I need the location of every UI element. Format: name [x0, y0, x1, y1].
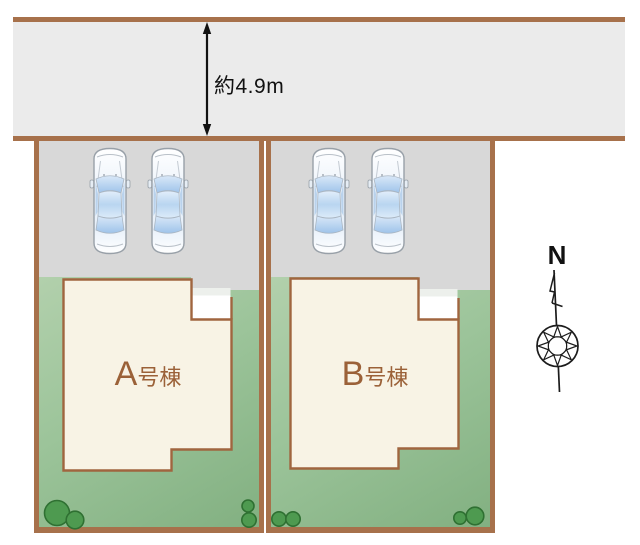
building-a-porch: [193, 296, 231, 319]
bushes: [45, 500, 484, 529]
bush-icon: [66, 511, 84, 529]
car-icon: [368, 149, 408, 254]
site-plan: 約4.9m A号棟 B号棟 N: [0, 0, 640, 545]
building-a-label: A号棟: [63, 357, 233, 392]
road-width-label: 約4.9m: [214, 70, 284, 100]
car-icon: [148, 149, 188, 254]
building-b-label-letter: B: [342, 355, 365, 393]
car-icon: [309, 149, 349, 254]
plan-drawing: [0, 0, 640, 545]
building-b-entrance-step: [420, 289, 458, 297]
bush-icon: [286, 512, 300, 526]
building-b-label: B号棟: [290, 357, 460, 392]
building-b-label-suffix: 号棟: [364, 365, 408, 390]
building-b-porch: [420, 297, 458, 319]
building-a-label-suffix: 号棟: [137, 365, 181, 390]
building-a-entrance-step: [193, 288, 231, 296]
building-a-label-letter: A: [115, 355, 138, 393]
car-icon: [90, 149, 130, 254]
bush-icon: [242, 513, 256, 527]
bush-icon: [454, 512, 466, 524]
dimension-arrow-icon: [203, 22, 211, 136]
bush-icon: [242, 500, 254, 512]
bush-icon: [466, 507, 484, 525]
bush-icon: [272, 512, 286, 526]
compass-north-label: N: [542, 240, 572, 271]
compass-icon: [537, 270, 578, 392]
